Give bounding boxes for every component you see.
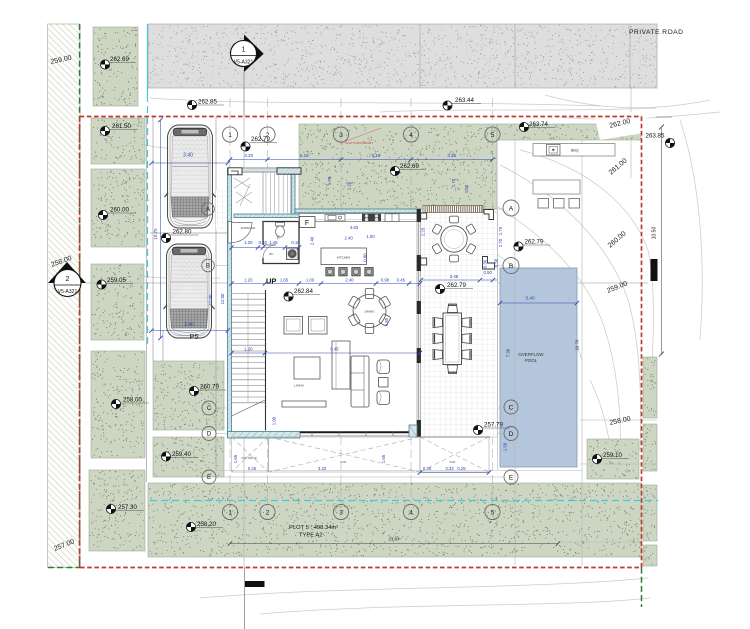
svg-text:PRIVATE ROAD: PRIVATE ROAD [629,29,683,36]
